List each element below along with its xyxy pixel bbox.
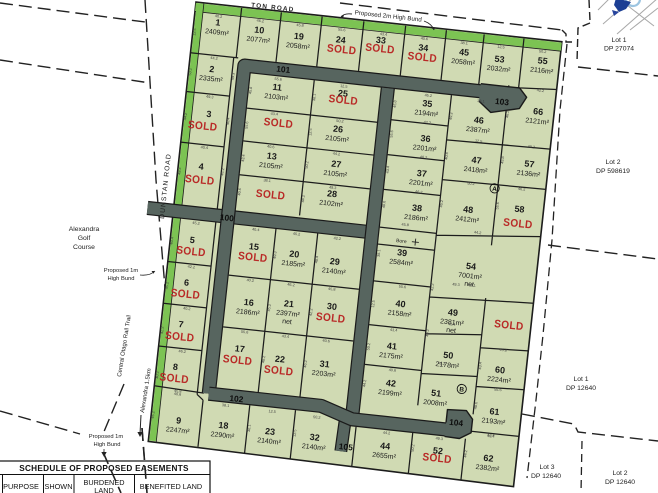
svg-text:44.2: 44.2 xyxy=(210,56,218,61)
svg-text:40.2: 40.2 xyxy=(261,356,266,364)
svg-text:26: 26 xyxy=(333,124,344,135)
svg-text:BENEFITED LAND: BENEFITED LAND xyxy=(140,482,202,491)
svg-text:45.8: 45.8 xyxy=(499,348,507,353)
svg-text:55.6: 55.6 xyxy=(245,121,250,129)
svg-text:Golf: Golf xyxy=(78,235,91,242)
svg-text:46.2: 46.2 xyxy=(505,110,510,118)
svg-text:40.6: 40.6 xyxy=(388,368,396,373)
svg-text:57: 57 xyxy=(524,158,535,169)
svg-text:53: 53 xyxy=(494,54,505,65)
svg-text:58: 58 xyxy=(514,204,525,215)
svg-text:43.4: 43.4 xyxy=(380,32,388,37)
svg-text:44.2: 44.2 xyxy=(463,450,468,458)
svg-text:DP 12640: DP 12640 xyxy=(605,479,635,486)
svg-text:50.2: 50.2 xyxy=(366,343,371,351)
svg-text:44: 44 xyxy=(380,441,391,452)
svg-text:105: 105 xyxy=(338,441,353,452)
svg-text:12.5: 12.5 xyxy=(371,300,376,308)
svg-text:62: 62 xyxy=(483,453,494,464)
svg-text:42.2: 42.2 xyxy=(430,283,435,291)
svg-text:38.1: 38.1 xyxy=(468,283,476,288)
svg-text:46.2: 46.2 xyxy=(303,360,308,368)
svg-text:45.8: 45.8 xyxy=(296,23,304,28)
svg-text:51: 51 xyxy=(431,388,442,399)
svg-text:44.2: 44.2 xyxy=(362,380,367,388)
svg-text:55: 55 xyxy=(537,55,548,66)
svg-text:40.2: 40.2 xyxy=(183,306,191,311)
svg-text:36: 36 xyxy=(420,133,431,144)
svg-text:16: 16 xyxy=(243,297,254,308)
svg-text:40: 40 xyxy=(395,298,406,309)
svg-text:46.2: 46.2 xyxy=(415,190,423,195)
svg-text:43.4: 43.4 xyxy=(281,334,289,339)
svg-text:35: 35 xyxy=(422,98,433,109)
svg-text:55.6: 55.6 xyxy=(399,285,407,290)
svg-text:45.2: 45.2 xyxy=(220,168,225,176)
svg-text:38.1: 38.1 xyxy=(222,403,230,408)
svg-text:55.6: 55.6 xyxy=(494,387,502,392)
svg-text:30: 30 xyxy=(326,301,337,312)
svg-text:12.5: 12.5 xyxy=(268,409,276,414)
svg-text:40.2: 40.2 xyxy=(420,155,428,160)
svg-text:46.2: 46.2 xyxy=(256,19,264,24)
svg-text:net: net xyxy=(282,318,292,326)
svg-text:44.2: 44.2 xyxy=(333,152,341,157)
svg-text:101: 101 xyxy=(276,64,291,75)
svg-text:43.4: 43.4 xyxy=(241,154,246,162)
svg-text:55.6: 55.6 xyxy=(495,202,500,210)
svg-text:21: 21 xyxy=(283,298,294,309)
svg-text:46.2: 46.2 xyxy=(518,187,526,192)
svg-text:46.2: 46.2 xyxy=(178,349,186,354)
svg-text:9: 9 xyxy=(176,415,182,425)
svg-text:40.4: 40.4 xyxy=(448,322,456,327)
svg-text:40.4: 40.4 xyxy=(170,237,175,245)
svg-text:40.4: 40.4 xyxy=(200,145,208,150)
svg-text:45.2: 45.2 xyxy=(192,221,200,226)
svg-text:40.2: 40.2 xyxy=(246,278,254,283)
svg-text:40.2: 40.2 xyxy=(425,329,430,337)
svg-text:LAND: LAND xyxy=(94,486,113,493)
svg-text:40.4: 40.4 xyxy=(315,256,320,264)
svg-text:55.6: 55.6 xyxy=(390,130,395,138)
svg-text:40.2: 40.2 xyxy=(215,14,223,19)
svg-text:49.3: 49.3 xyxy=(177,167,182,175)
svg-text:PURPOSE: PURPOSE xyxy=(3,482,39,491)
svg-text:SHOWN: SHOWN xyxy=(45,482,73,491)
svg-text:40.4: 40.4 xyxy=(226,117,231,125)
svg-text:49.3: 49.3 xyxy=(452,282,460,287)
svg-text:50.2: 50.2 xyxy=(188,68,193,76)
svg-text:49: 49 xyxy=(447,307,458,318)
svg-text:42.2: 42.2 xyxy=(333,236,341,241)
svg-text:42.2: 42.2 xyxy=(160,326,165,334)
svg-text:100: 100 xyxy=(219,212,234,223)
svg-text:12.5: 12.5 xyxy=(308,128,313,136)
svg-text:DP 27074: DP 27074 xyxy=(604,46,634,53)
svg-text:45.2: 45.2 xyxy=(165,282,170,290)
svg-text:102: 102 xyxy=(229,393,244,404)
svg-text:Lot 3: Lot 3 xyxy=(539,464,554,471)
svg-text:SCHEDULE OF PROPOSED EASEMENTS: SCHEDULE OF PROPOSED EASEMENTS xyxy=(19,464,189,473)
svg-text:44.2: 44.2 xyxy=(183,113,188,121)
svg-text:66: 66 xyxy=(533,106,544,117)
svg-text:45.8: 45.8 xyxy=(393,100,398,108)
svg-text:43.4: 43.4 xyxy=(478,362,483,370)
svg-text:45.2: 45.2 xyxy=(439,200,444,208)
svg-text:40.6: 40.6 xyxy=(474,402,479,410)
svg-text:54: 54 xyxy=(466,261,477,272)
svg-text:Proposed 1m: Proposed 1m xyxy=(104,268,139,274)
svg-text:49.3: 49.3 xyxy=(435,436,443,441)
svg-text:DP 12640: DP 12640 xyxy=(566,385,596,392)
svg-text:18: 18 xyxy=(218,420,229,431)
svg-text:48: 48 xyxy=(463,204,474,215)
svg-text:50.2: 50.2 xyxy=(467,181,475,186)
svg-text:Lot 2: Lot 2 xyxy=(612,470,627,477)
svg-text:17: 17 xyxy=(234,343,245,354)
svg-text:High Bund: High Bund xyxy=(107,276,134,282)
svg-text:55.6: 55.6 xyxy=(241,330,249,335)
svg-text:103: 103 xyxy=(495,96,510,107)
svg-text:37: 37 xyxy=(416,168,427,179)
svg-text:46: 46 xyxy=(473,115,484,126)
svg-text:38.1: 38.1 xyxy=(477,99,485,104)
svg-text:3: 3 xyxy=(206,109,212,119)
svg-text:40.2: 40.2 xyxy=(527,145,535,150)
svg-text:12.5: 12.5 xyxy=(192,28,197,36)
svg-text:42.2: 42.2 xyxy=(309,308,314,316)
svg-text:12.5: 12.5 xyxy=(497,45,505,50)
svg-text:DP 598619: DP 598619 xyxy=(596,168,630,175)
svg-text:44.2: 44.2 xyxy=(383,431,391,436)
svg-text:1: 1 xyxy=(215,17,221,27)
svg-text:29: 29 xyxy=(329,256,340,267)
svg-text:12.5: 12.5 xyxy=(340,84,348,89)
svg-text:40.6: 40.6 xyxy=(267,145,275,150)
svg-text:104: 104 xyxy=(449,417,464,428)
svg-text:net: net xyxy=(446,327,456,335)
svg-text:31: 31 xyxy=(319,359,330,370)
svg-text:42: 42 xyxy=(385,378,396,389)
svg-text:13: 13 xyxy=(266,151,277,162)
svg-text:49.3: 49.3 xyxy=(231,73,236,81)
svg-text:55.6: 55.6 xyxy=(338,28,346,33)
svg-text:46.2: 46.2 xyxy=(287,283,295,288)
svg-text:Lot 2: Lot 2 xyxy=(605,159,620,166)
svg-text:47: 47 xyxy=(471,155,482,166)
svg-text:39: 39 xyxy=(397,247,408,258)
svg-text:50.2: 50.2 xyxy=(313,415,321,420)
svg-text:8: 8 xyxy=(172,362,178,372)
svg-text:5: 5 xyxy=(189,235,195,245)
svg-text:DP 12640: DP 12640 xyxy=(531,473,561,480)
svg-text:45.8: 45.8 xyxy=(248,87,253,95)
svg-text:6: 6 xyxy=(184,277,190,287)
svg-text:45.2: 45.2 xyxy=(437,361,445,366)
svg-text:41: 41 xyxy=(386,341,397,352)
svg-text:43.4: 43.4 xyxy=(390,328,398,333)
svg-text:45.2: 45.2 xyxy=(424,93,432,98)
svg-text:42.2: 42.2 xyxy=(187,265,195,270)
svg-text:4: 4 xyxy=(198,161,204,171)
svg-text:45: 45 xyxy=(459,47,470,58)
svg-text:45.8: 45.8 xyxy=(328,287,336,292)
svg-text:38.1: 38.1 xyxy=(247,424,252,432)
svg-text:Proposed 1m: Proposed 1m xyxy=(89,434,124,440)
svg-text:45.8: 45.8 xyxy=(401,223,409,228)
svg-text:45.2: 45.2 xyxy=(267,304,272,312)
svg-text:Lot 1: Lot 1 xyxy=(573,376,588,383)
svg-text:49.3: 49.3 xyxy=(329,185,337,190)
svg-text:19: 19 xyxy=(293,31,304,42)
svg-text:40.6: 40.6 xyxy=(382,201,387,209)
svg-text:40.4: 40.4 xyxy=(444,152,449,160)
svg-text:20: 20 xyxy=(289,249,300,260)
svg-text:40.6: 40.6 xyxy=(237,188,242,196)
svg-text:50.2: 50.2 xyxy=(539,49,547,54)
svg-text:40.6: 40.6 xyxy=(322,339,330,344)
svg-text:50: 50 xyxy=(443,350,454,361)
svg-text:43.4: 43.4 xyxy=(386,166,391,174)
svg-text:45.8: 45.8 xyxy=(500,156,505,164)
svg-text:23: 23 xyxy=(265,426,276,437)
svg-text:40.6: 40.6 xyxy=(174,392,182,397)
svg-text:50.2: 50.2 xyxy=(336,119,344,124)
svg-text:10: 10 xyxy=(254,24,265,35)
svg-text:61: 61 xyxy=(489,406,500,417)
svg-text:High Bund: High Bund xyxy=(93,442,120,448)
svg-text:42.2: 42.2 xyxy=(537,88,545,93)
svg-text:38.1: 38.1 xyxy=(460,41,468,46)
svg-text:Alexandra: Alexandra xyxy=(69,226,100,233)
svg-text:40.4: 40.4 xyxy=(252,227,260,232)
svg-text:40.6: 40.6 xyxy=(420,36,428,41)
svg-text:27: 27 xyxy=(331,159,342,170)
svg-text:22: 22 xyxy=(274,354,285,365)
svg-text:2: 2 xyxy=(209,64,215,74)
svg-text:55.6: 55.6 xyxy=(274,77,282,82)
svg-text:Lot 1: Lot 1 xyxy=(611,37,626,44)
svg-text:49.3: 49.3 xyxy=(449,112,454,120)
svg-text:7: 7 xyxy=(178,319,184,329)
svg-text:38.1: 38.1 xyxy=(312,93,317,101)
svg-text:42.2: 42.2 xyxy=(423,120,431,125)
svg-text:38.1: 38.1 xyxy=(377,249,382,257)
svg-text:Bore: Bore xyxy=(396,238,407,245)
svg-text:40.2: 40.2 xyxy=(155,371,160,379)
svg-text:12.5: 12.5 xyxy=(293,429,298,437)
svg-text:43.4: 43.4 xyxy=(270,112,278,117)
svg-text:46.2: 46.2 xyxy=(151,411,156,419)
svg-text:38: 38 xyxy=(412,203,423,214)
svg-text:45.2: 45.2 xyxy=(293,232,301,237)
svg-text:43.4: 43.4 xyxy=(487,433,495,438)
svg-text:12.5: 12.5 xyxy=(475,139,483,144)
svg-text:11: 11 xyxy=(272,82,283,93)
svg-text:49.3: 49.3 xyxy=(206,95,214,100)
svg-text:50.2: 50.2 xyxy=(411,444,416,452)
svg-text:38.1: 38.1 xyxy=(263,178,271,183)
svg-text:49.3: 49.3 xyxy=(273,251,278,259)
svg-text:Course: Course xyxy=(73,244,95,251)
svg-text:44.2: 44.2 xyxy=(301,195,306,203)
svg-text:60: 60 xyxy=(495,364,506,375)
svg-text:44.2: 44.2 xyxy=(474,230,482,235)
svg-text:50.2: 50.2 xyxy=(305,161,310,169)
svg-text:32: 32 xyxy=(309,432,320,443)
